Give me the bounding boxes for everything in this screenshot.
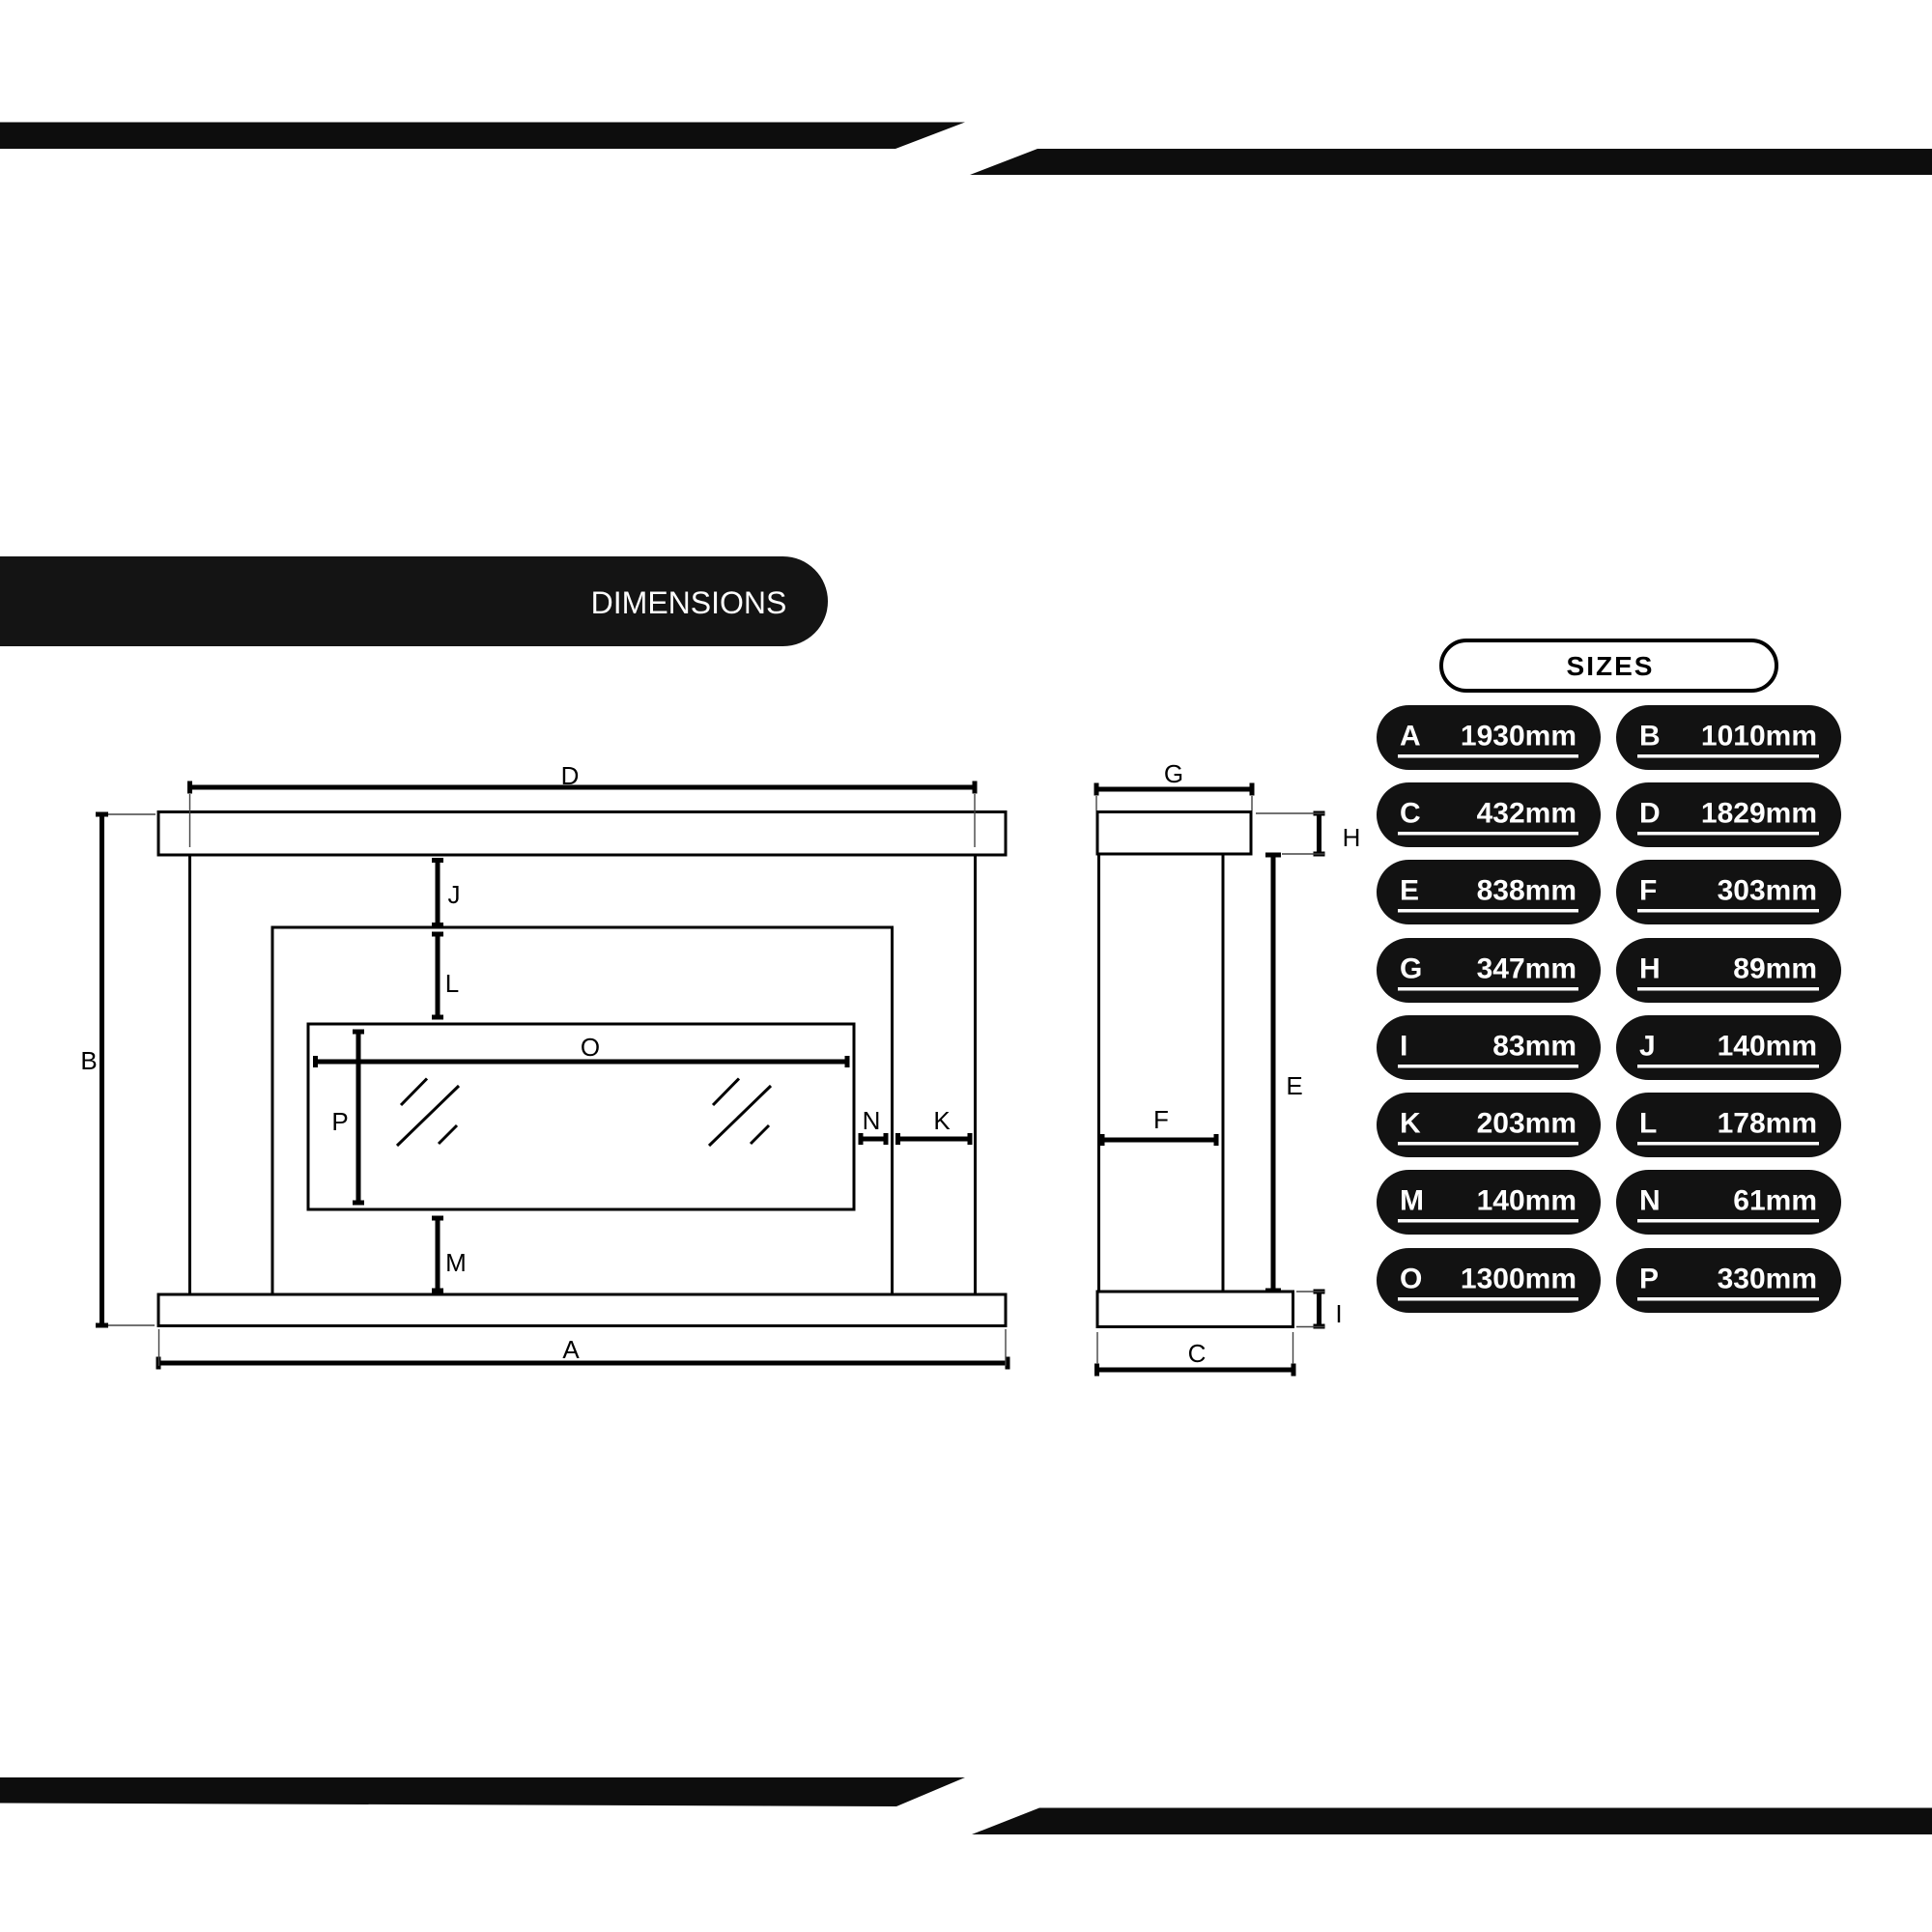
svg-text:M: M bbox=[1400, 1185, 1424, 1217]
svg-text:1930mm: 1930mm bbox=[1461, 721, 1577, 753]
svg-text:C: C bbox=[1400, 798, 1421, 830]
svg-text:J: J bbox=[448, 880, 461, 909]
svg-text:A: A bbox=[562, 1335, 580, 1364]
svg-text:J: J bbox=[1639, 1031, 1656, 1063]
svg-text:P: P bbox=[331, 1107, 348, 1136]
svg-text:F: F bbox=[1639, 875, 1657, 907]
svg-text:L: L bbox=[1639, 1108, 1657, 1140]
svg-text:432mm: 432mm bbox=[1477, 798, 1577, 830]
svg-text:347mm: 347mm bbox=[1477, 953, 1577, 985]
svg-text:838mm: 838mm bbox=[1477, 875, 1577, 907]
svg-text:L: L bbox=[445, 969, 459, 998]
svg-text:1300mm: 1300mm bbox=[1461, 1264, 1577, 1295]
svg-text:H: H bbox=[1343, 823, 1361, 852]
svg-text:330mm: 330mm bbox=[1718, 1264, 1817, 1295]
svg-text:P: P bbox=[1639, 1264, 1659, 1295]
svg-text:89mm: 89mm bbox=[1733, 953, 1817, 985]
svg-text:N: N bbox=[863, 1106, 881, 1135]
svg-text:E: E bbox=[1400, 875, 1419, 907]
svg-text:D: D bbox=[1639, 798, 1661, 830]
svg-text:B: B bbox=[80, 1046, 97, 1075]
svg-text:61mm: 61mm bbox=[1733, 1185, 1817, 1217]
svg-text:D: D bbox=[561, 761, 580, 790]
svg-text:H: H bbox=[1639, 953, 1661, 985]
svg-text:M: M bbox=[445, 1248, 467, 1277]
svg-text:SIZES: SIZES bbox=[1567, 651, 1655, 681]
svg-text:1829mm: 1829mm bbox=[1701, 798, 1817, 830]
svg-text:G: G bbox=[1164, 759, 1183, 788]
svg-text:I: I bbox=[1335, 1299, 1342, 1328]
svg-text:K: K bbox=[933, 1106, 951, 1135]
svg-text:O: O bbox=[581, 1033, 600, 1062]
svg-text:A: A bbox=[1400, 721, 1421, 753]
svg-text:140mm: 140mm bbox=[1477, 1185, 1577, 1217]
svg-text:C: C bbox=[1188, 1339, 1207, 1368]
svg-text:203mm: 203mm bbox=[1477, 1108, 1577, 1140]
svg-text:1010mm: 1010mm bbox=[1701, 721, 1817, 753]
svg-text:178mm: 178mm bbox=[1718, 1108, 1817, 1140]
svg-text:83mm: 83mm bbox=[1492, 1031, 1577, 1063]
svg-text:E: E bbox=[1286, 1071, 1302, 1100]
svg-text:I: I bbox=[1400, 1031, 1407, 1063]
svg-text:303mm: 303mm bbox=[1718, 875, 1817, 907]
svg-text:O: O bbox=[1400, 1264, 1422, 1295]
svg-text:G: G bbox=[1400, 953, 1422, 985]
svg-text:DIMENSIONS: DIMENSIONS bbox=[591, 585, 787, 620]
svg-text:B: B bbox=[1639, 721, 1661, 753]
svg-text:140mm: 140mm bbox=[1718, 1031, 1817, 1063]
svg-text:F: F bbox=[1153, 1105, 1169, 1134]
svg-text:K: K bbox=[1400, 1108, 1421, 1140]
svg-text:N: N bbox=[1639, 1185, 1661, 1217]
